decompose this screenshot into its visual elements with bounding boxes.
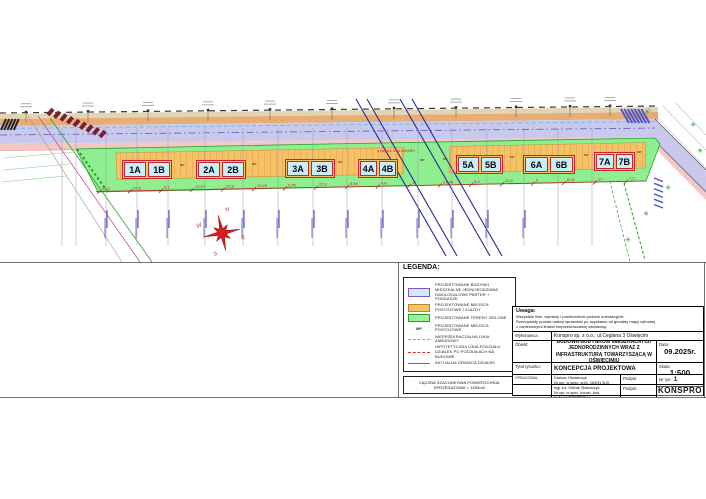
tree-symbol: ✳	[665, 184, 671, 192]
podpis-label: Podpis:	[620, 375, 656, 384]
parking-strip	[116, 148, 404, 180]
legend-swatch-building	[408, 288, 430, 297]
legend-item-label: PROJEKTOWANE BUDYNKI MIESZKALNE JEDNOROD…	[435, 283, 511, 302]
legend-item-label: HIPOTETYCZNA LINIA PODZIAŁU DZIAŁEK PO P…	[435, 345, 511, 359]
dimension-value: 22,8	[319, 182, 328, 187]
dimension-value: 22,8	[226, 184, 235, 189]
mp-label: MP	[420, 158, 425, 162]
tree-symbol: ✳	[644, 108, 650, 116]
legend-item-label: PROJEKTOWANE MIEJSCA POSTOJOWE	[435, 324, 511, 334]
hatch-strip	[654, 205, 663, 209]
tree-symbol: ✳	[625, 236, 631, 244]
mp-label: MP	[180, 163, 185, 167]
legend-item: PROJEKTOWANE TERENY ZIELONE	[408, 314, 511, 322]
hatch-strip	[654, 194, 663, 198]
author2-license: Nr upr. w spec. konstr.-bud. SLK/7028/PW…	[554, 391, 618, 397]
legend-swatch-parking	[408, 304, 430, 312]
dimension-value: 8,9	[474, 179, 480, 184]
hatch-strip	[654, 199, 663, 203]
dimension-value: 6,1	[164, 185, 170, 190]
legend-box: PROJEKTOWANE BUDYNKI MIESZKALNE JEDNOROD…	[403, 277, 516, 372]
contour-line	[2, 176, 66, 182]
legend-item: NIEPRZEKRACZALNA LINIA ZABUDOWY	[408, 335, 511, 345]
legend-swatch-mp: MP	[408, 326, 430, 331]
dimension-value: 9,55	[350, 181, 359, 186]
legend-item-label: AKTUALNA GRANICA DZIAŁEK	[435, 361, 495, 366]
dimension-value: 7,2	[629, 176, 635, 181]
tytul-value: KONCEPCJA PROJEKTOWA	[551, 363, 656, 374]
compass-letter-s: S	[213, 251, 219, 258]
dimension-value: 10,15	[195, 184, 206, 189]
dimension-value: 8,25	[567, 177, 576, 182]
mp-label: MP	[443, 157, 448, 161]
compass-letter-w: W	[196, 222, 204, 230]
dimension-value: 9,45	[288, 182, 297, 187]
drawing-sheet: 10,322,86,110,1522,810,259,4522,89,554,8…	[0, 0, 706, 499]
tree-symbol: ✳	[643, 210, 649, 218]
mp-label: MP	[338, 160, 343, 164]
hatch-strip	[654, 189, 663, 193]
tree-symbol: ✳	[697, 147, 703, 155]
dimension-value: 17	[412, 180, 417, 185]
hatch-strip	[654, 183, 663, 187]
obiekt-label: Obiekt:	[513, 341, 551, 362]
side-road-line	[676, 103, 706, 135]
site-plan-drawing: 10,322,86,110,1522,810,259,4522,89,554,8…	[0, 0, 706, 499]
mp-label: MP	[252, 162, 257, 166]
dimension-value: 22,8	[133, 185, 142, 190]
dimension-value: 4,8	[381, 181, 387, 186]
parking-strip	[449, 143, 646, 174]
legend-item: MPPROJEKTOWANE MIEJSCA POSTOJOWE	[408, 324, 511, 334]
hatch-strip	[654, 178, 663, 182]
podpis-label: Podpis:	[620, 385, 656, 397]
dimension-value: 10,3	[102, 186, 111, 191]
legend-swatch-line-cyan	[408, 339, 430, 340]
dimension-value: 21,45	[443, 179, 454, 184]
legend-title: LEGENDA:	[403, 264, 440, 271]
legend-summary: ŁĄCZNA SZACUNKOWA POWIERZCHNIA SPRZEDAŻO…	[403, 376, 516, 394]
note-line: z naniesionymi liniami nieprzekraczalnej…	[516, 324, 700, 329]
compass-letter-e: E	[241, 234, 247, 241]
mp-label: MP	[510, 155, 515, 159]
legend-swatch-line-green	[408, 363, 430, 364]
title-block: Uwaga: Wszystkie linie, wymiary i powier…	[512, 306, 704, 396]
nr-rys-value: 1	[674, 376, 678, 383]
contour-line	[4, 164, 70, 170]
wykonawca-label: Wykonawca:	[513, 332, 551, 340]
legend-item: AKTUALNA GRANICA DZIAŁEK	[408, 361, 511, 366]
legend-item: PROJEKTOWANE BUDYNKI MIESZKALNE JEDNOROD…	[408, 283, 511, 302]
dimension-value: 17	[598, 176, 603, 181]
legend-item: PROJEKTOWANE MIEJSCA POSTOJOWE I ZJAZDY	[408, 303, 511, 313]
dimension-value: 22,8	[505, 178, 514, 183]
konspro-logo: KONSPRO	[656, 386, 703, 397]
legend-item-label: PROJEKTOWANE MIEJSCA POSTOJOWE I ZJAZDY	[435, 303, 511, 313]
wykonawca-value: Konspro sp. z o.o.; ul.Ceglana 3 Oświęci…	[551, 332, 703, 340]
legend-item: HIPOTETYCZNA LINIA PODZIAŁU DZIAŁEK PO P…	[408, 345, 511, 359]
nr-rys-label: Nr rys.:	[659, 377, 673, 382]
skala-value: 1:500	[659, 369, 701, 374]
obiekt-value: BUDOWA BUDYNKÓW MIESZKALNYCH JEDNORODZIN…	[551, 341, 656, 362]
data-value: 09.2025r.	[659, 347, 701, 356]
dimension-value: 10,25	[257, 183, 268, 188]
tree-symbol: ✳	[690, 121, 696, 129]
mp-label: MP	[584, 153, 589, 157]
legend-swatch-green	[408, 314, 430, 322]
legend-item-label: NIEPRZEKRACZALNA LINIA ZABUDOWY	[435, 335, 511, 345]
opracowal-label: OPRACOWAŁ:	[513, 375, 551, 384]
legend-swatch-line-red	[408, 352, 430, 353]
compass-rose	[204, 215, 239, 250]
legend-item-label: PROJEKTOWANE TERENY ZIELONE	[435, 316, 506, 321]
tytul-label: Tytuł rysunku:	[513, 363, 551, 374]
author1-license: Nr upr. w spec. arch. 164/91 B-B	[554, 381, 618, 384]
mp-label: MP	[637, 150, 642, 154]
compass-letter-n: N	[224, 206, 230, 213]
